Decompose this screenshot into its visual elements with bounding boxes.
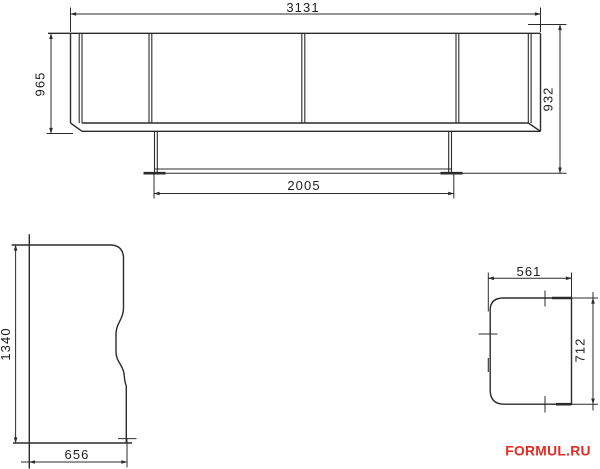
seat-outline (490, 298, 571, 404)
dim-label-front-base-width: 2005 (287, 178, 320, 193)
technical-drawing-page: 3131 965 932 2005 (0, 0, 600, 469)
front-elevation-view: 3131 965 932 2005 (33, 0, 567, 199)
dim-label-front-overall-width: 3131 (286, 0, 319, 15)
front-left-arm-inner-lines (79, 33, 82, 123)
dim-label-seat-width: 561 (517, 264, 542, 279)
pedestal-right-leg (449, 131, 452, 173)
front-divider-3 (456, 33, 459, 123)
side-profile-view: 1340 656 (0, 234, 137, 468)
seat-plan-view: 561 712 (479, 264, 599, 413)
dim-seat-width: 561 (488, 264, 571, 312)
dim-label-seat-depth: 712 (573, 338, 588, 363)
dim-label-front-left-height: 965 (33, 72, 48, 97)
dim-label-front-right-height: 932 (541, 87, 556, 112)
front-right-arm-inner-lines (528, 33, 531, 123)
dim-front-overall-width: 3131 (71, 0, 541, 32)
pedestal-left-leg (155, 131, 158, 173)
dim-side-height: 1340 (0, 245, 16, 443)
dim-seat-depth: 712 (552, 292, 598, 411)
furniture-dimension-drawing: 3131 965 932 2005 (0, 0, 600, 469)
front-divider-1 (149, 33, 152, 123)
front-bottom-left-bevel (71, 123, 83, 131)
dim-front-base-width: 2005 (154, 173, 454, 198)
dim-front-right-height: 932 (528, 25, 567, 174)
front-divider-2 (302, 33, 305, 123)
watermark: FORMUL.RU (505, 444, 590, 459)
front-bottom-right-bevel (528, 123, 540, 131)
dim-label-side-depth: 656 (65, 447, 90, 462)
dim-front-left-height: 965 (33, 33, 74, 133)
dim-label-side-height: 1340 (0, 327, 13, 360)
